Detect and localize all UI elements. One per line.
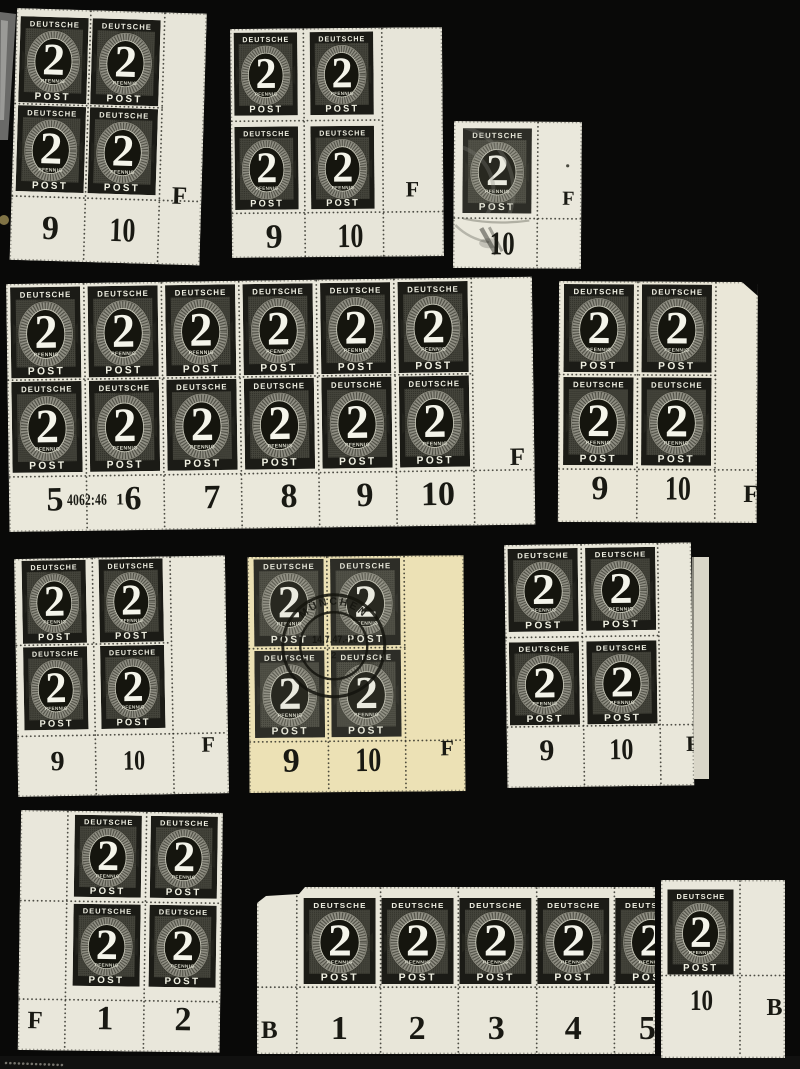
svg-text:F: F bbox=[406, 176, 420, 201]
svg-text:9: 9 bbox=[539, 734, 554, 767]
svg-text:10: 10 bbox=[665, 471, 691, 508]
svg-text:7: 7 bbox=[203, 479, 221, 516]
svg-text:10: 10 bbox=[690, 984, 713, 1017]
svg-text:2: 2 bbox=[174, 1001, 192, 1038]
svg-text:9: 9 bbox=[283, 743, 300, 780]
svg-text:10: 10 bbox=[490, 226, 515, 262]
svg-text:10: 10 bbox=[337, 218, 363, 255]
svg-text:2: 2 bbox=[331, 650, 336, 660]
svg-text:1: 1 bbox=[116, 491, 124, 508]
svg-text:9: 9 bbox=[266, 219, 283, 256]
svg-text:F: F bbox=[743, 481, 758, 508]
svg-text:10: 10 bbox=[109, 212, 136, 250]
svg-text:10: 10 bbox=[609, 733, 633, 766]
svg-text:F: F bbox=[562, 188, 574, 210]
svg-text:5: 5 bbox=[639, 1010, 656, 1047]
svg-text:B: B bbox=[766, 995, 782, 1021]
svg-text:8: 8 bbox=[280, 478, 298, 515]
svg-text:3: 3 bbox=[488, 1010, 505, 1047]
svg-text:10: 10 bbox=[355, 742, 381, 779]
svg-text:14.7.47.-18: 14.7.47.-18 bbox=[312, 634, 358, 646]
svg-text:F: F bbox=[510, 444, 526, 471]
svg-text:1: 1 bbox=[96, 1000, 114, 1037]
svg-text:6: 6 bbox=[124, 480, 142, 517]
svg-text:F: F bbox=[201, 732, 215, 757]
svg-text:4: 4 bbox=[565, 1010, 582, 1047]
svg-text:10: 10 bbox=[123, 745, 146, 776]
svg-text:9: 9 bbox=[356, 477, 374, 514]
svg-text:F: F bbox=[171, 183, 187, 210]
svg-text:2: 2 bbox=[409, 1010, 426, 1047]
svg-text:B: B bbox=[261, 1017, 278, 1044]
svg-text:4062:46: 4062:46 bbox=[67, 492, 107, 510]
svg-text:9: 9 bbox=[50, 746, 65, 777]
svg-text:9: 9 bbox=[591, 470, 608, 507]
svg-text:10: 10 bbox=[421, 476, 456, 513]
svg-text:5: 5 bbox=[46, 481, 64, 518]
svg-text:9: 9 bbox=[41, 210, 59, 247]
svg-text:F: F bbox=[440, 735, 454, 760]
svg-text:1: 1 bbox=[331, 1010, 348, 1047]
svg-text:F: F bbox=[27, 1007, 43, 1034]
